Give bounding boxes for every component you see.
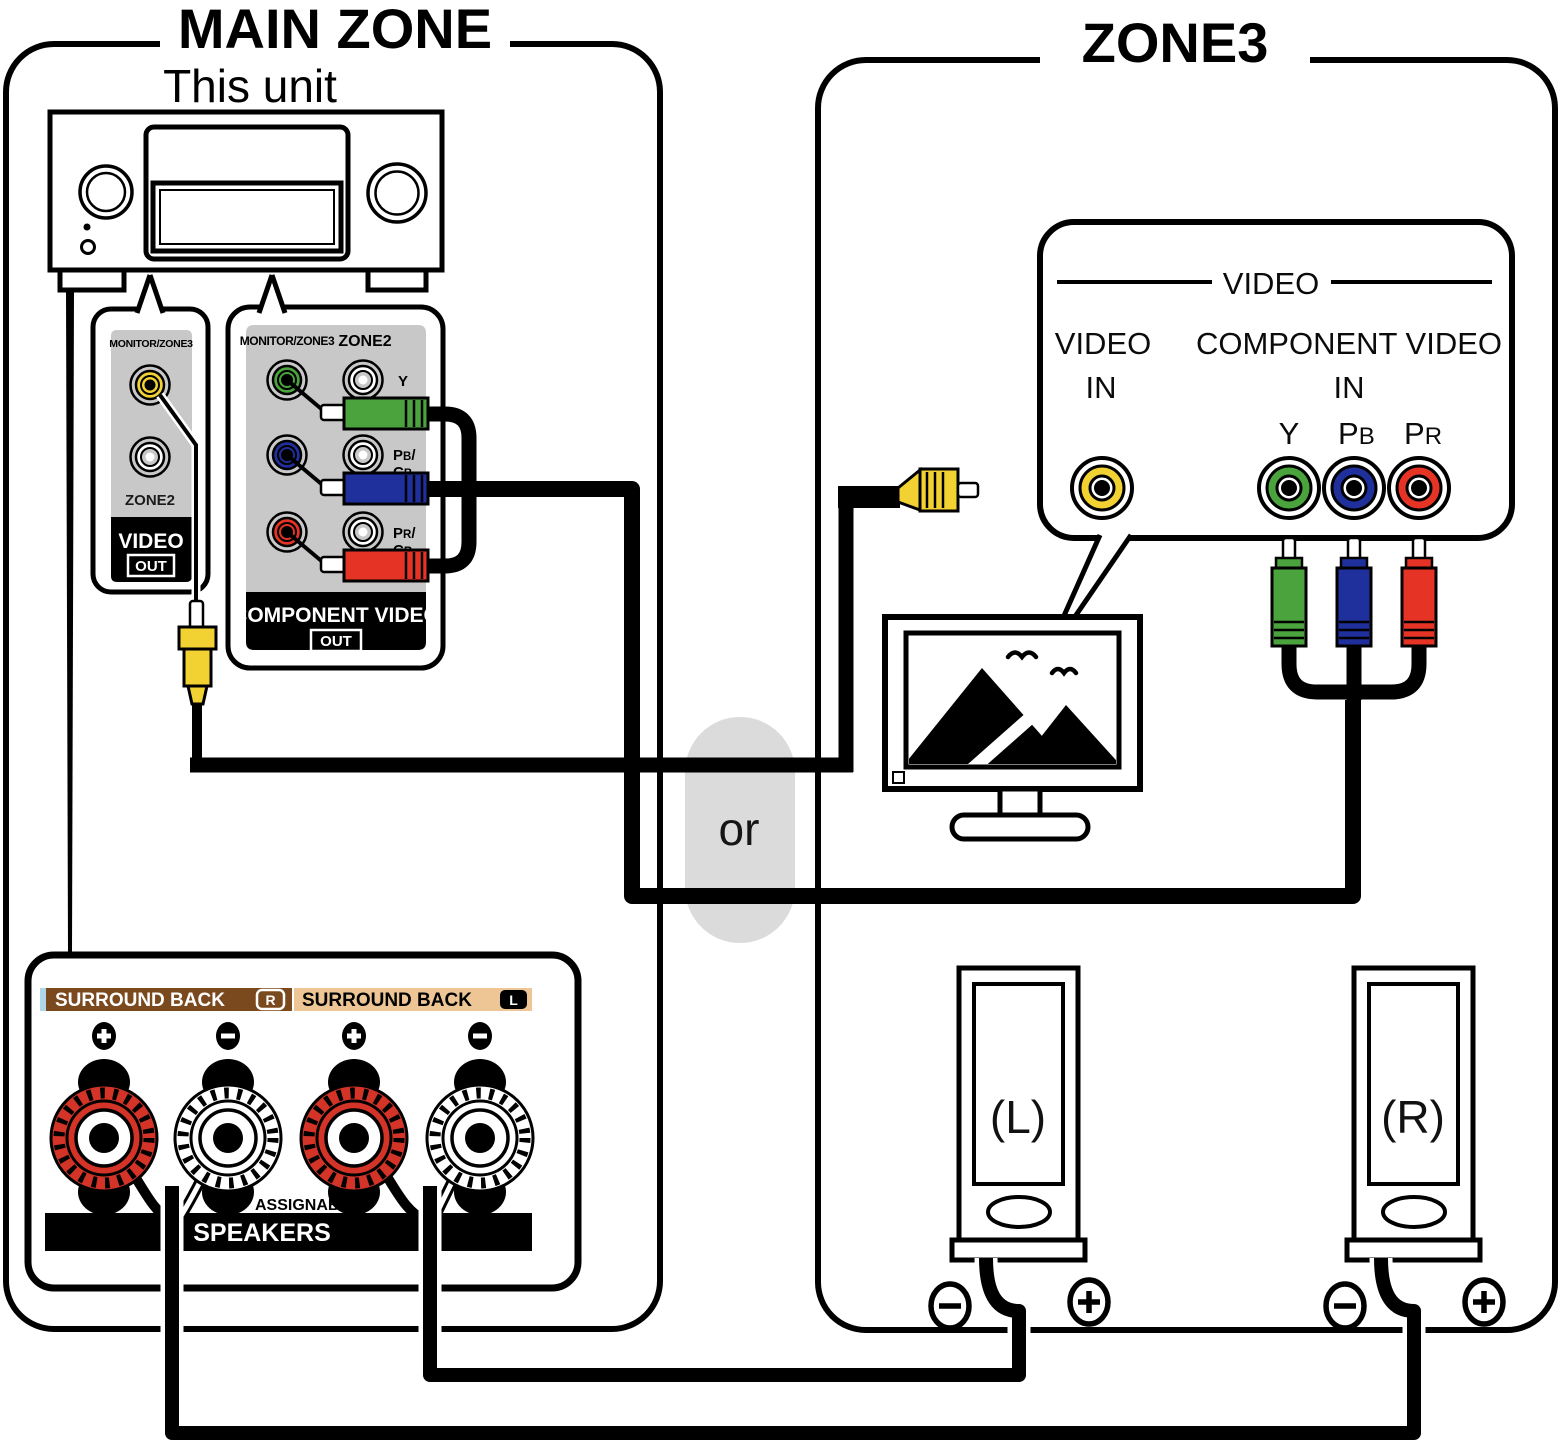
- svg-text:OUT: OUT: [320, 633, 352, 650]
- video-header: VIDEO: [1223, 266, 1319, 301]
- monitor-zone3-label: MONITOR/ZONE3: [109, 338, 193, 350]
- plus-icon: [92, 1022, 116, 1050]
- main-zone-title: MAIN ZONE: [178, 0, 492, 60]
- speaker-port-icon: [1383, 1197, 1445, 1227]
- y-label: Y: [398, 373, 408, 390]
- svg-text:R: R: [265, 992, 275, 1008]
- svg-text:L: L: [509, 992, 518, 1008]
- zone3-y-in-jack: [1259, 458, 1319, 518]
- zone3-title: ZONE3: [1082, 11, 1269, 74]
- component-video-label: COMPONENT VIDEO: [232, 604, 440, 627]
- monitor-zone3-label: MONITOR/ZONE3: [240, 334, 335, 348]
- zone2-label: ZONE2: [338, 333, 391, 350]
- video-label: VIDEO: [118, 530, 183, 553]
- callout-wedges: [137, 275, 285, 313]
- color-code-strip: [40, 988, 46, 1011]
- speaker-r: (R): [1347, 968, 1480, 1260]
- speaker-r-label: (R): [1381, 1091, 1445, 1143]
- zone3-video-panel: VIDEO VIDEO COMPONENT VIDEO IN IN Y PB P…: [1040, 222, 1512, 538]
- unit-label: This unit: [163, 60, 337, 112]
- svg-text:SURROUND BACK: SURROUND BACK: [55, 990, 225, 1011]
- composite-plug-yellow: [179, 601, 216, 704]
- zone3-pb-in-jack: [1324, 458, 1384, 518]
- zone3-component-plug-green: [1272, 538, 1306, 646]
- receiver-illustration: [50, 112, 442, 290]
- minus-icon: [216, 1022, 240, 1050]
- tv-control-icon: [893, 772, 904, 783]
- video-out-panel: MONITOR/ZONE3 ZONE2 VIDEO OUT: [93, 309, 208, 592]
- minus-terminal-icon: [931, 1284, 969, 1328]
- svg-text:OUT: OUT: [135, 558, 167, 575]
- plus-terminal-icon: [1070, 1280, 1108, 1324]
- svg-text:SURROUND BACK: SURROUND BACK: [302, 990, 472, 1011]
- zone3-component-plug-blue: [1337, 538, 1371, 646]
- callout-line-speakers: [66, 291, 74, 953]
- diagram-canvas: MAIN ZONE ZONE3 This unit MONITOR/ZONE3: [0, 0, 1562, 1444]
- component-pb-zone2-jack: [344, 436, 383, 475]
- speaker-l-label: (L): [990, 1091, 1046, 1143]
- connection-diagram: MAIN ZONE ZONE3 This unit MONITOR/ZONE3: [0, 0, 1562, 1444]
- zone2-label: ZONE2: [125, 492, 175, 509]
- svg-text:IN: IN: [1334, 370, 1365, 405]
- component-y-zone2-jack: [344, 361, 383, 400]
- receiver-foot: [368, 270, 426, 290]
- svg-text:IN: IN: [1086, 370, 1117, 405]
- y-label: Y: [1279, 416, 1300, 451]
- speaker-base: [1347, 1240, 1480, 1260]
- svg-text:or: or: [719, 803, 760, 855]
- speaker-base: [952, 1240, 1085, 1260]
- power-led-icon: [84, 224, 91, 231]
- power-button-icon: [82, 241, 95, 254]
- zone3-composite-plug-yellow: [898, 469, 978, 511]
- svg-text:SPEAKERS: SPEAKERS: [193, 1219, 331, 1247]
- speaker-port-icon: [988, 1197, 1050, 1227]
- zone3-component-plug-red: [1402, 538, 1436, 646]
- or-badge: or: [685, 717, 795, 943]
- tv-stand-base: [952, 815, 1088, 839]
- tv-callout: [1063, 533, 1131, 618]
- component-video-in-label: COMPONENT VIDEO: [1196, 326, 1502, 361]
- video-in-label: VIDEO: [1055, 326, 1151, 361]
- zone3-pr-in-jack: [1389, 458, 1449, 518]
- minus-terminal-icon: [1326, 1284, 1364, 1328]
- tv-icon: [885, 617, 1140, 839]
- minus-icon: [468, 1022, 492, 1050]
- receiver-foot: [60, 270, 124, 290]
- zone3-video-in-jack: [1072, 458, 1132, 518]
- component-pr-zone2-jack: [344, 513, 383, 552]
- speaker-l: (L): [952, 968, 1085, 1260]
- video-zone2-jack: [131, 438, 170, 477]
- plus-icon: [342, 1022, 366, 1050]
- plus-terminal-icon: [1465, 1280, 1503, 1324]
